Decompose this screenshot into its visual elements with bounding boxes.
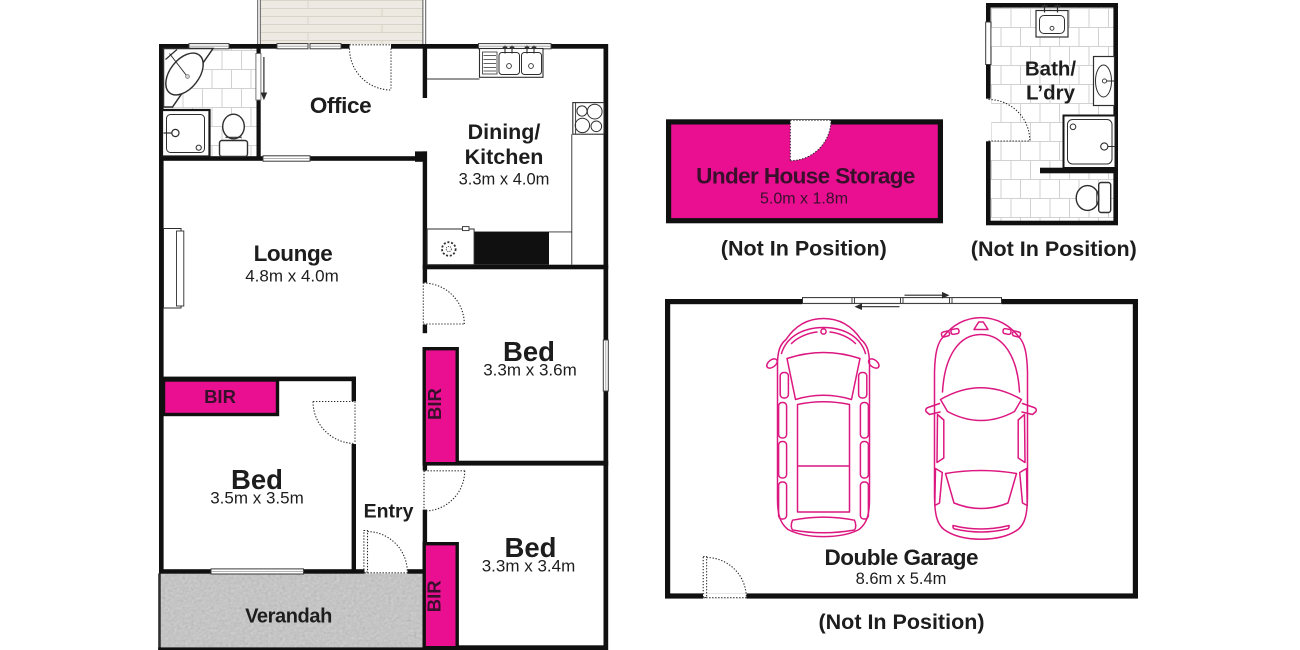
svg-text:Dining/: Dining/ bbox=[468, 120, 541, 144]
svg-text:Under House Storage: Under House Storage bbox=[696, 164, 915, 189]
svg-text:Bath/: Bath/ bbox=[1025, 58, 1077, 81]
svg-text:4.8m x 4.0m: 4.8m x 4.0m bbox=[245, 267, 339, 286]
svg-text:Verandah: Verandah bbox=[245, 606, 332, 628]
svg-text:3.5m x 3.5m: 3.5m x 3.5m bbox=[210, 489, 304, 508]
svg-text:3.3m x 3.4m: 3.3m x 3.4m bbox=[482, 556, 576, 575]
svg-text:(Not In Position): (Not In Position) bbox=[721, 237, 887, 261]
svg-text:5.0m x 1.8m: 5.0m x 1.8m bbox=[760, 191, 848, 208]
svg-text:Entry: Entry bbox=[364, 501, 414, 523]
svg-text:(Not In Position): (Not In Position) bbox=[971, 237, 1137, 261]
svg-text:3.3m x 4.0m: 3.3m x 4.0m bbox=[459, 171, 550, 189]
svg-text:BIR: BIR bbox=[204, 386, 236, 407]
svg-text:3.3m x 3.6m: 3.3m x 3.6m bbox=[483, 361, 577, 380]
svg-text:Double Garage: Double Garage bbox=[825, 545, 979, 570]
svg-text:8.6m x 5.4m: 8.6m x 5.4m bbox=[856, 570, 947, 588]
svg-text:Lounge: Lounge bbox=[254, 241, 333, 266]
svg-text:Kitchen: Kitchen bbox=[465, 145, 544, 169]
svg-text:(Not In Position): (Not In Position) bbox=[819, 610, 985, 634]
svg-text:Office: Office bbox=[310, 93, 371, 118]
svg-text:L’dry: L’dry bbox=[1026, 82, 1076, 105]
svg-text:BIR: BIR bbox=[424, 580, 445, 612]
svg-text:BIR: BIR bbox=[424, 388, 445, 420]
